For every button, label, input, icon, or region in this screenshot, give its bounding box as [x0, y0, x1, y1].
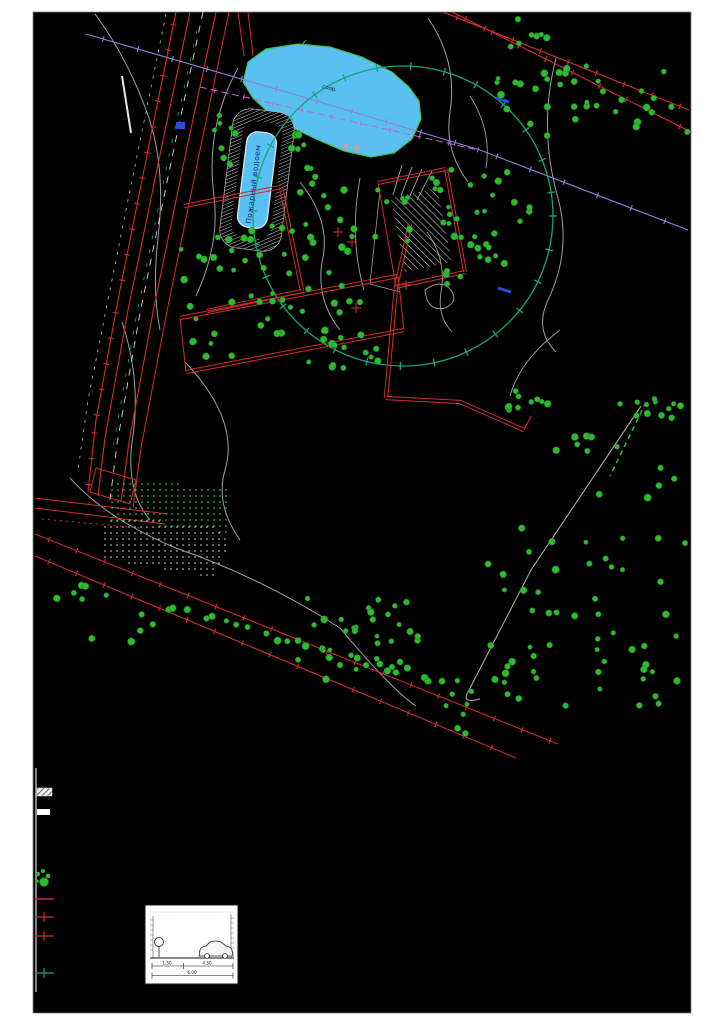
planting-grid-white	[182, 550, 184, 552]
planting-grid-white	[110, 556, 112, 558]
tree	[274, 637, 281, 644]
tree	[572, 116, 578, 122]
planting-grid-white	[158, 556, 160, 558]
tree	[258, 322, 264, 328]
planting-grid-green	[159, 483, 161, 485]
tree	[595, 669, 601, 675]
planting-grid-green	[225, 519, 227, 521]
tree	[563, 65, 570, 72]
planting-grid-white	[104, 532, 106, 534]
tree	[397, 659, 403, 665]
planting-grid-white	[134, 526, 136, 528]
tree	[485, 256, 491, 262]
tree	[657, 579, 663, 585]
tree	[249, 293, 254, 298]
planting-grid-green	[225, 489, 227, 491]
planting-grid-white	[116, 532, 118, 534]
tree	[502, 670, 509, 677]
tree	[274, 330, 281, 337]
tree	[219, 145, 225, 151]
tree	[300, 309, 305, 314]
planting-grid-green	[183, 513, 185, 515]
planting-grid-white	[206, 574, 208, 576]
planting-grid-green	[129, 507, 131, 509]
planting-grid-green	[147, 513, 149, 515]
planting-grid-green	[195, 495, 197, 497]
tree	[643, 104, 650, 111]
planting-grid-white	[110, 532, 112, 534]
tree	[295, 657, 301, 663]
planting-grid-white	[200, 550, 202, 552]
planting-grid-white	[140, 562, 142, 564]
planting-grid-green	[225, 495, 227, 497]
tree	[502, 680, 507, 685]
planting-grid-green	[177, 507, 179, 509]
planting-grid-white	[122, 544, 124, 546]
planting-grid-white	[200, 538, 202, 540]
planting-grid-green	[183, 489, 185, 491]
planting-grid-green	[219, 525, 221, 527]
tree	[544, 76, 550, 82]
planting-grid-white	[128, 556, 130, 558]
tree	[465, 702, 470, 707]
planting-grid-green	[153, 501, 155, 503]
tree	[506, 403, 512, 409]
planting-grid-green	[135, 483, 137, 485]
planting-grid-white	[212, 532, 214, 534]
tree	[546, 610, 552, 616]
planting-grid-green	[189, 489, 191, 491]
dim-total: 6.00	[187, 970, 197, 975]
planting-grid-green	[123, 483, 125, 485]
tree	[633, 123, 640, 130]
tree	[520, 587, 527, 594]
tree	[302, 642, 309, 649]
planting-grid-white	[146, 526, 148, 528]
planting-grid-white	[110, 526, 112, 528]
tree	[326, 654, 333, 661]
tree	[656, 483, 662, 489]
tree	[348, 653, 353, 658]
planting-grid-white	[212, 562, 214, 564]
car-wheel	[205, 954, 210, 959]
planting-grid-white	[152, 538, 154, 540]
tree	[397, 622, 402, 627]
tree	[472, 234, 477, 239]
tree	[450, 691, 455, 696]
tree	[529, 32, 534, 37]
planting-grid-green	[153, 507, 155, 509]
planting-grid-white	[140, 550, 142, 552]
tree	[389, 639, 394, 644]
planting-grid-white	[146, 562, 148, 564]
tree	[652, 396, 657, 401]
planting-grid-white	[188, 550, 190, 552]
planting-grid-white	[128, 562, 130, 564]
tree	[341, 365, 346, 370]
planting-grid-green	[171, 513, 173, 515]
planting-grid-green	[147, 489, 149, 491]
tree	[596, 611, 602, 617]
planting-grid-green	[141, 507, 143, 509]
planting-grid-white	[212, 574, 214, 576]
planting-grid-green	[201, 519, 203, 521]
tree	[511, 199, 518, 206]
planting-grid-green	[171, 507, 173, 509]
planting-grid-white	[104, 550, 106, 552]
planting-grid-white	[158, 544, 160, 546]
planting-grid-green	[129, 483, 131, 485]
tree	[150, 621, 156, 627]
planting-grid-white	[164, 556, 166, 558]
planting-grid-white	[116, 550, 118, 552]
tree	[495, 178, 502, 185]
tree	[529, 608, 535, 614]
tree	[636, 702, 642, 708]
tree	[563, 703, 569, 709]
planting-grid-green	[189, 507, 191, 509]
tree	[585, 448, 591, 454]
tree	[535, 590, 540, 595]
tree	[468, 182, 473, 187]
tree	[210, 254, 217, 261]
tree	[325, 204, 331, 210]
tree	[301, 142, 306, 147]
tree	[196, 254, 202, 260]
tree	[256, 252, 262, 258]
tree	[504, 169, 510, 175]
planting-grid-white	[224, 538, 226, 540]
planting-grid-white	[176, 526, 178, 528]
tree	[444, 703, 449, 708]
planting-grid-green	[225, 501, 227, 503]
tree	[305, 596, 310, 601]
planting-grid-white	[146, 556, 148, 558]
planting-grid-green	[189, 501, 191, 503]
tree	[500, 571, 507, 578]
tree	[373, 346, 379, 352]
tree	[515, 405, 520, 410]
tree	[339, 617, 344, 622]
planting-grid-green	[123, 507, 125, 509]
tree	[320, 336, 327, 343]
tree	[169, 605, 176, 612]
tree	[350, 225, 357, 232]
tree	[512, 79, 518, 85]
tree	[79, 596, 85, 602]
tree	[375, 640, 381, 646]
tree	[658, 465, 664, 471]
planting-grid-green	[165, 519, 167, 521]
planting-grid-white	[110, 520, 112, 522]
tree	[503, 106, 510, 113]
tree	[454, 216, 459, 221]
tree	[497, 91, 504, 98]
planting-grid-white	[164, 544, 166, 546]
tree	[652, 693, 658, 699]
tree	[571, 433, 578, 440]
tree	[586, 561, 592, 567]
planting-grid-white	[170, 526, 172, 528]
tree	[496, 76, 501, 81]
planting-grid-white	[146, 538, 148, 540]
tree	[263, 630, 269, 636]
planting-grid-white	[218, 544, 220, 546]
tree	[447, 212, 453, 218]
planting-grid-green	[135, 489, 137, 491]
tree	[225, 236, 232, 243]
tree	[363, 350, 369, 356]
tree	[501, 260, 508, 267]
planting-grid-green	[195, 501, 197, 503]
tree	[270, 291, 275, 296]
planting-grid-white	[140, 544, 142, 546]
tree	[270, 223, 275, 228]
tree	[248, 227, 255, 234]
planting-grid-green	[213, 489, 215, 491]
planting-grid-white	[182, 544, 184, 546]
tree	[82, 583, 89, 590]
planting-grid-white	[176, 550, 178, 552]
tree	[516, 41, 521, 46]
planting-grid-green	[111, 489, 113, 491]
planting-grid-white	[194, 526, 196, 528]
tree	[668, 104, 674, 110]
tree	[370, 616, 376, 622]
tree	[53, 595, 60, 602]
tree	[539, 32, 544, 37]
tree	[309, 181, 315, 187]
tree	[552, 566, 559, 573]
planting-grid-white	[164, 538, 166, 540]
planting-grid-white	[146, 550, 148, 552]
tree	[486, 245, 492, 251]
tree	[458, 235, 463, 240]
planting-grid-green	[159, 495, 161, 497]
planting-grid-white	[194, 532, 196, 534]
tree	[592, 596, 598, 602]
tree	[553, 447, 560, 454]
planting-grid-green	[189, 495, 191, 497]
planting-grid-white	[194, 550, 196, 552]
planting-grid-white	[140, 526, 142, 528]
planting-grid-white	[206, 526, 208, 528]
tree	[611, 630, 616, 635]
planting-grid-green	[219, 501, 221, 503]
planting-grid-white	[140, 520, 142, 522]
planting-grid-green	[129, 495, 131, 497]
tree	[462, 730, 468, 736]
tree	[485, 561, 491, 567]
tree	[279, 225, 285, 231]
tree	[242, 258, 248, 264]
tree	[286, 270, 292, 276]
planting-grid-white	[152, 526, 154, 528]
planting-grid-white	[158, 526, 160, 528]
tree	[461, 712, 466, 717]
planting-grid-white	[206, 568, 208, 570]
planting-grid-green	[207, 513, 209, 515]
planting-grid-green	[219, 507, 221, 509]
planting-grid-white	[182, 562, 184, 564]
tree	[194, 317, 199, 322]
tree	[231, 268, 236, 273]
tree	[451, 233, 458, 240]
tree	[312, 174, 318, 180]
blue-marker	[176, 122, 185, 129]
legend-hatch-swatch	[37, 788, 52, 796]
tree	[137, 627, 143, 633]
tree	[508, 44, 514, 50]
tree	[282, 252, 287, 257]
tree	[357, 332, 364, 339]
tree	[375, 187, 380, 192]
planting-grid-white	[212, 568, 214, 570]
planting-grid-white	[116, 526, 118, 528]
tree	[602, 659, 607, 664]
tree	[502, 588, 507, 593]
tree	[229, 126, 234, 131]
tree	[544, 103, 551, 110]
tree	[454, 725, 460, 731]
tree	[128, 638, 135, 645]
planting-grid-white	[134, 562, 136, 564]
planting-grid-white	[218, 562, 220, 564]
tree	[669, 415, 675, 421]
tree	[633, 413, 639, 419]
tree	[297, 189, 303, 195]
legend-tree	[41, 869, 45, 873]
planting-grid-white	[170, 544, 172, 546]
tree	[491, 230, 497, 236]
tree	[89, 635, 95, 641]
drawing-page: Пожарный водоем соор. 1.50 4.50 6.00	[0, 0, 724, 1024]
planting-grid-green	[171, 519, 173, 521]
tree	[179, 247, 184, 252]
tree	[321, 616, 328, 623]
tree	[139, 611, 145, 617]
drawing-canvas[interactable]	[33, 12, 691, 1013]
planting-grid-green	[207, 501, 209, 503]
planting-grid-green	[225, 525, 227, 527]
planting-grid-white	[194, 568, 196, 570]
legend-tree	[40, 878, 49, 887]
tree	[549, 538, 556, 545]
tree	[415, 633, 421, 639]
tree	[363, 662, 369, 668]
tree	[306, 360, 311, 365]
planting-grid-white	[104, 556, 106, 558]
planting-grid-white	[188, 562, 190, 564]
planting-grid-white	[140, 532, 142, 534]
planting-grid-green	[153, 483, 155, 485]
planting-grid-green	[153, 513, 155, 515]
planting-grid-white	[206, 544, 208, 546]
tree	[477, 254, 482, 259]
tree	[554, 610, 560, 616]
planting-grid-green	[159, 507, 161, 509]
tree	[455, 678, 460, 683]
tree	[338, 335, 343, 340]
tree	[357, 299, 363, 305]
planting-grid-white	[200, 562, 202, 564]
tree	[218, 121, 223, 126]
tree	[682, 540, 688, 546]
planting-grid-white	[176, 556, 178, 558]
planting-grid-green	[129, 489, 131, 491]
planting-grid-green	[195, 513, 197, 515]
planting-grid-white	[170, 550, 172, 552]
planting-grid-green	[201, 495, 203, 497]
planting-grid-white	[200, 568, 202, 570]
planting-grid-green	[159, 513, 161, 515]
planting-grid-green	[213, 501, 215, 503]
planting-grid-white	[194, 562, 196, 564]
planting-grid-white	[158, 550, 160, 552]
tree	[184, 606, 191, 613]
tree	[644, 402, 649, 407]
planting-grid-green	[165, 495, 167, 497]
planting-grid-green	[123, 489, 125, 491]
planting-grid-white	[164, 568, 166, 570]
tree	[684, 129, 690, 135]
planting-grid-green	[171, 495, 173, 497]
planting-grid-green	[141, 501, 143, 503]
planting-grid-green	[111, 507, 113, 509]
planting-grid-green	[177, 483, 179, 485]
planting-grid-white	[158, 520, 160, 522]
tree	[265, 316, 270, 321]
tree	[516, 394, 521, 399]
planting-grid-white	[140, 538, 142, 540]
tree	[458, 274, 463, 279]
tree	[673, 677, 680, 684]
tree	[609, 564, 614, 569]
tree	[531, 653, 537, 659]
tree	[311, 622, 316, 627]
planting-grid-green	[195, 489, 197, 491]
tree	[228, 299, 235, 306]
road-west-fence-tick	[89, 458, 95, 459]
tree	[641, 643, 647, 649]
tree	[374, 656, 379, 661]
tree	[349, 234, 354, 239]
tree	[595, 647, 600, 652]
tree	[444, 268, 450, 274]
planting-grid-white	[218, 556, 220, 558]
tree	[337, 662, 343, 668]
tree	[650, 669, 655, 674]
tree	[288, 145, 295, 152]
tree	[571, 103, 577, 109]
tree	[224, 618, 229, 623]
planting-grid-white	[188, 544, 190, 546]
tree	[439, 678, 445, 684]
tree	[505, 691, 511, 697]
tree	[229, 353, 235, 359]
tree	[640, 666, 647, 673]
tree	[515, 16, 521, 22]
planting-grid-white	[122, 556, 124, 558]
planting-grid-white	[212, 556, 214, 558]
planting-grid-white	[158, 562, 160, 564]
tree	[280, 297, 286, 303]
planting-grid-green	[159, 501, 161, 503]
planting-grid-white	[176, 544, 178, 546]
tree	[374, 358, 381, 365]
planting-grid-white	[140, 556, 142, 558]
tree	[596, 491, 602, 497]
